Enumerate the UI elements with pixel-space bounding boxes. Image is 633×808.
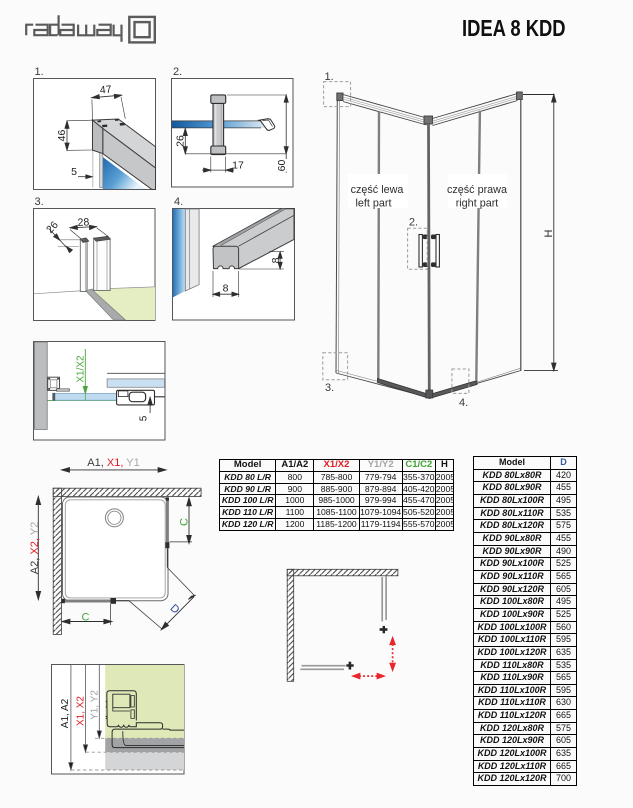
svg-text:część lewa: część lewa: [351, 184, 404, 196]
svg-text:right part: right part: [456, 198, 499, 210]
svg-text:60: 60: [276, 160, 288, 172]
svg-text:3.: 3.: [325, 382, 334, 394]
svg-text:X1, X2: X1, X2: [75, 696, 86, 726]
svg-text:Y1, Y2: Y1, Y2: [90, 690, 101, 720]
svg-text:left part: left part: [355, 198, 391, 210]
svg-text:X1/X2: X1/X2: [75, 355, 86, 383]
svg-text:46: 46: [56, 130, 68, 142]
svg-text:część prawa: część prawa: [447, 184, 507, 196]
svg-text:2.: 2.: [409, 217, 418, 229]
svg-text:H: H: [543, 229, 555, 237]
svg-text:C: C: [179, 518, 191, 526]
svg-text:5: 5: [139, 415, 150, 421]
svg-text:1.: 1.: [325, 71, 334, 83]
svg-text:C: C: [82, 611, 90, 623]
svg-text:A2, X2, Y2: A2, X2, Y2: [29, 522, 41, 574]
svg-text:26: 26: [175, 135, 187, 147]
svg-text:A1, X1, Y1: A1, X1, Y1: [87, 457, 139, 469]
svg-text:17: 17: [232, 160, 244, 172]
svg-text:A1, A2: A1, A2: [60, 698, 71, 728]
svg-text:8: 8: [270, 257, 282, 263]
svg-text:4.: 4.: [459, 397, 468, 409]
svg-text:5: 5: [71, 166, 77, 178]
svg-text:28: 28: [77, 216, 89, 229]
svg-text:8: 8: [223, 283, 229, 295]
svg-text:47: 47: [99, 84, 112, 97]
svg-text:D: D: [168, 602, 182, 616]
